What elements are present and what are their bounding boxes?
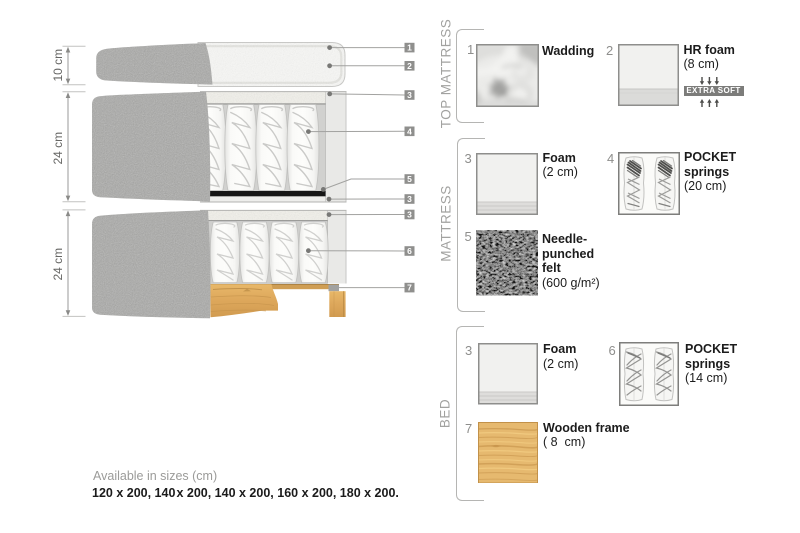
svg-text:4: 4 bbox=[407, 126, 412, 136]
svg-text:5: 5 bbox=[407, 174, 412, 184]
svg-text:10 cm: 10 cm bbox=[51, 49, 65, 82]
svg-text:1: 1 bbox=[407, 43, 412, 53]
svg-text:7: 7 bbox=[407, 283, 412, 293]
svg-text:3: 3 bbox=[407, 210, 412, 220]
svg-text:24 cm: 24 cm bbox=[51, 132, 65, 165]
svg-text:2: 2 bbox=[407, 61, 412, 71]
svg-text:3: 3 bbox=[407, 194, 412, 204]
svg-text:24 cm: 24 cm bbox=[51, 248, 65, 281]
svg-text:3: 3 bbox=[407, 90, 412, 100]
svg-text:6: 6 bbox=[407, 246, 412, 256]
